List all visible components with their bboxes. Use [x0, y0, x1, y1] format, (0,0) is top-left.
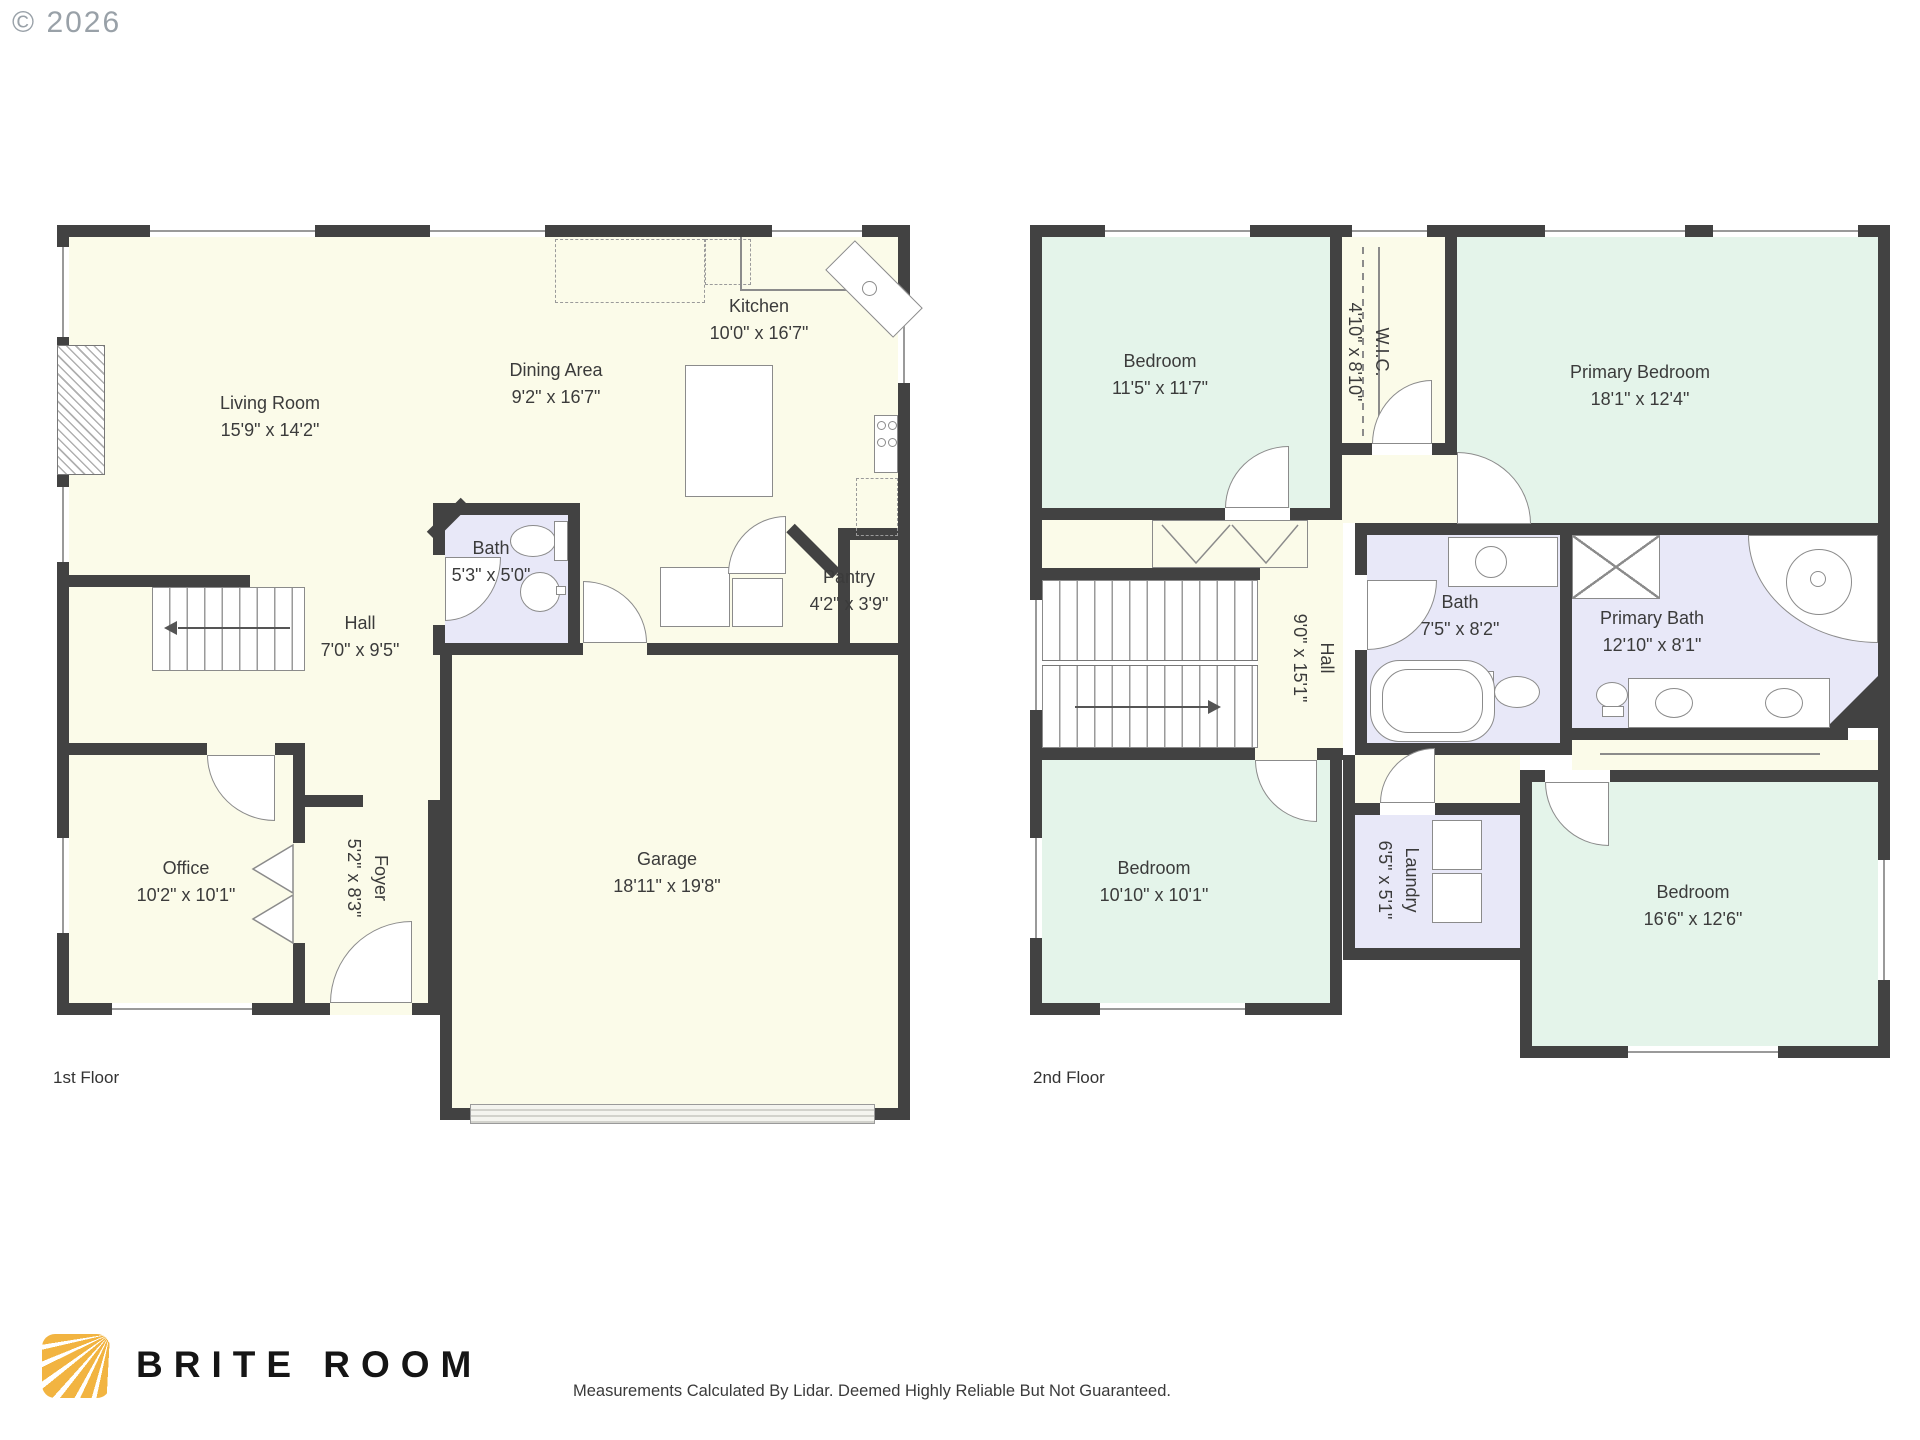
- bath-sink: [1475, 546, 1507, 578]
- room-name: Bedroom: [1100, 855, 1209, 882]
- stair-arrow-head: [1208, 700, 1221, 714]
- room-name: Bedroom: [1112, 348, 1208, 375]
- room-name: Laundry: [1398, 841, 1425, 920]
- linen-closet: [1572, 535, 1660, 599]
- room-name: Hall: [321, 610, 400, 637]
- brand-name: BRITE ROOM: [136, 1344, 482, 1386]
- window: [150, 225, 315, 237]
- room-name: Pantry: [810, 564, 889, 591]
- toilet-bowl: [1596, 682, 1628, 708]
- wall: [1532, 770, 1545, 782]
- window: [57, 247, 69, 337]
- vanity-sink: [1655, 688, 1693, 718]
- room-label-office: Office 10'2" x 10'1": [137, 855, 236, 909]
- room-dims: 7'5" x 8'2": [1421, 616, 1500, 643]
- closet-rod-line: [1600, 753, 1820, 755]
- wall: [1343, 815, 1355, 960]
- room-name: Foyer: [367, 839, 394, 918]
- wall: [1355, 743, 1572, 755]
- room-dims: 6'5" x 5'1": [1371, 841, 1398, 920]
- wall: [275, 743, 305, 755]
- hall-2f-upper: [1342, 455, 1457, 523]
- floor-tag-2nd: 2nd Floor: [1033, 1068, 1105, 1088]
- room-dims: 18'1" x 12'4": [1570, 386, 1710, 413]
- room-name: Office: [137, 855, 236, 882]
- appliance-box: [660, 567, 730, 627]
- wall: [1030, 568, 1260, 580]
- garage-door: [470, 1104, 875, 1124]
- room-dims: 10'0" x 16'7": [710, 320, 809, 347]
- toilet-tank: [1602, 706, 1624, 717]
- room-dims: 9'2" x 16'7": [509, 384, 602, 411]
- room-label-dining-area: Dining Area 9'2" x 16'7": [509, 357, 602, 411]
- wall: [305, 795, 363, 807]
- toilet-bowl: [1494, 676, 1540, 708]
- window: [112, 1003, 252, 1015]
- room-label-kitchen: Kitchen 10'0" x 16'7": [710, 293, 809, 347]
- burner: [888, 438, 897, 447]
- floor-tag-1st: 1st Floor: [53, 1068, 119, 1088]
- window: [1030, 600, 1042, 710]
- room-name: Bedroom: [1644, 879, 1743, 906]
- room-label-pantry: Pantry 4'2" x 3'9": [810, 564, 889, 618]
- sofa-chaise-outline: [705, 239, 751, 285]
- room-dims: 11'5" x 11'7": [1112, 375, 1208, 402]
- brite-room-logo-icon: [42, 1334, 110, 1398]
- room-name: Bath: [452, 535, 531, 562]
- room-dims: 4'2" x 3'9": [810, 591, 889, 618]
- washer: [1432, 820, 1482, 870]
- wall: [1610, 770, 1890, 782]
- room-dims: 4'10" x 8'10": [1341, 303, 1368, 402]
- window: [1713, 225, 1858, 237]
- stair-arrow-line: [178, 627, 290, 629]
- room-label-bath-1f: Bath 5'3" x 5'0": [452, 535, 531, 589]
- room-label-hall-2f: Hall 9'0" x 15'1": [1286, 614, 1340, 703]
- counter-line: [740, 237, 742, 289]
- burner: [888, 421, 897, 430]
- room-label-bedroom-bl: Bedroom 10'10" x 10'1": [1100, 855, 1209, 909]
- room-dims: 5'3" x 5'0": [452, 562, 531, 589]
- window: [57, 487, 69, 562]
- wall: [293, 755, 305, 843]
- wall: [1560, 535, 1572, 755]
- window: [1628, 1046, 1778, 1058]
- window: [1878, 860, 1890, 980]
- wall: [1355, 523, 1890, 535]
- room-name: Kitchen: [710, 293, 809, 320]
- wall: [1355, 650, 1367, 755]
- wall: [647, 643, 910, 655]
- window: [430, 225, 545, 237]
- wall: [433, 625, 445, 655]
- room-label-laundry: Laundry 6'5" x 5'1": [1371, 841, 1425, 920]
- room-label-bedroom-br: Bedroom 16'6" x 12'6": [1644, 879, 1743, 933]
- appliance-box: [732, 578, 783, 627]
- wall: [1343, 803, 1380, 815]
- burner: [877, 421, 886, 430]
- floor-plan-canvas: © 2026: [0, 0, 1920, 1440]
- vanity-sink: [1765, 688, 1803, 718]
- window: [772, 225, 862, 237]
- room-name: W.I.C.: [1368, 303, 1395, 402]
- room-label-primary-bath: Primary Bath 12'10" x 8'1": [1600, 605, 1704, 659]
- window: [1352, 225, 1427, 237]
- stair-rail: [1042, 660, 1258, 666]
- wall: [1355, 523, 1367, 575]
- wall: [1520, 770, 1532, 1058]
- room-label-living-room: Living Room 15'9" x 14'2": [220, 390, 320, 444]
- wall: [293, 943, 305, 1015]
- kitchen-sink: [862, 281, 877, 296]
- window: [1105, 225, 1250, 237]
- wall: [1342, 443, 1372, 455]
- copyright-text: © 2026: [12, 6, 121, 40]
- room-label-bath-2f: Bath 7'5" x 8'2": [1421, 589, 1500, 643]
- bifold-closet-doors: [1158, 522, 1302, 566]
- room-label-wic: W.I.C. 4'10" x 8'10": [1341, 303, 1395, 402]
- wall: [1343, 948, 1520, 960]
- room-label-foyer: Foyer 5'2" x 8'3": [340, 839, 394, 918]
- room-dims: 10'10" x 10'1": [1100, 882, 1209, 909]
- fireplace: [57, 345, 105, 475]
- tub-drain: [1810, 571, 1826, 587]
- disclaimer-text: Measurements Calculated By Lidar. Deemed…: [573, 1382, 1171, 1401]
- window: [1030, 838, 1042, 938]
- wall: [875, 1108, 910, 1120]
- door-opening: [1255, 748, 1317, 760]
- room-label-bedroom-tl: Bedroom 11'5" x 11'7": [1112, 348, 1208, 402]
- wall: [428, 800, 440, 1015]
- room-dims: 18'11" x 19'8": [613, 873, 720, 900]
- room-dims: 5'2" x 8'3": [340, 839, 367, 918]
- room-name: Bath: [1421, 589, 1500, 616]
- closet-sliver: [1572, 740, 1878, 770]
- window: [57, 838, 69, 933]
- toilet-tank: [554, 521, 568, 561]
- room-name: Dining Area: [509, 357, 602, 384]
- room-label-hall-1f: Hall 7'0" x 9'5": [321, 610, 400, 664]
- refrigerator-outline: [856, 478, 898, 536]
- dryer: [1432, 873, 1482, 923]
- room-name: Hall: [1313, 614, 1340, 703]
- room-dims: 16'6" x 12'6": [1644, 906, 1743, 933]
- wall: [1435, 803, 1520, 815]
- wall: [57, 575, 250, 587]
- room-name: Garage: [613, 846, 720, 873]
- sofa-outline: [555, 239, 705, 303]
- room-name: Living Room: [220, 390, 320, 417]
- bathtub-inner: [1382, 669, 1483, 733]
- room-dims: 7'0" x 9'5": [321, 637, 400, 664]
- wall: [568, 503, 580, 655]
- room-name: Primary Bedroom: [1570, 359, 1710, 386]
- wall: [1432, 443, 1457, 455]
- wall: [1330, 760, 1342, 1003]
- room-dims: 9'0" x 15'1": [1286, 614, 1313, 703]
- window: [1545, 225, 1685, 237]
- room-dims: 12'10" x 8'1": [1600, 632, 1704, 659]
- sink-tap: [556, 586, 566, 595]
- wall: [440, 643, 452, 1120]
- wall: [440, 643, 583, 655]
- window: [1100, 1003, 1245, 1015]
- stair-arrow-head: [164, 621, 177, 635]
- room-label-primary-bedroom: Primary Bedroom 18'1" x 12'4": [1570, 359, 1710, 413]
- room-label-garage: Garage 18'11" x 19'8": [613, 846, 720, 900]
- room-dims: 15'9" x 14'2": [220, 417, 320, 444]
- wall: [1030, 508, 1225, 520]
- wall: [1445, 225, 1457, 455]
- dining-table: [685, 365, 773, 497]
- wall: [57, 743, 207, 755]
- bifold-closet-doors: [250, 843, 295, 945]
- burner: [877, 438, 886, 447]
- room-dims: 10'2" x 10'1": [137, 882, 236, 909]
- wall: [1560, 728, 1848, 740]
- room-name: Primary Bath: [1600, 605, 1704, 632]
- stair-arrow-line: [1075, 706, 1210, 708]
